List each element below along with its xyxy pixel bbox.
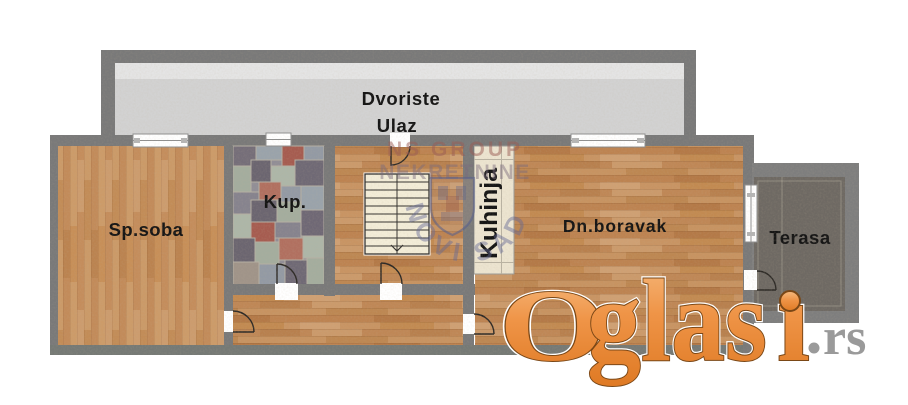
svg-text:glas: glas <box>587 255 767 386</box>
svg-text:rs: rs <box>823 309 866 366</box>
svg-text:ı: ı <box>777 255 810 386</box>
svg-text:NS GROUP: NS GROUP <box>387 138 523 161</box>
